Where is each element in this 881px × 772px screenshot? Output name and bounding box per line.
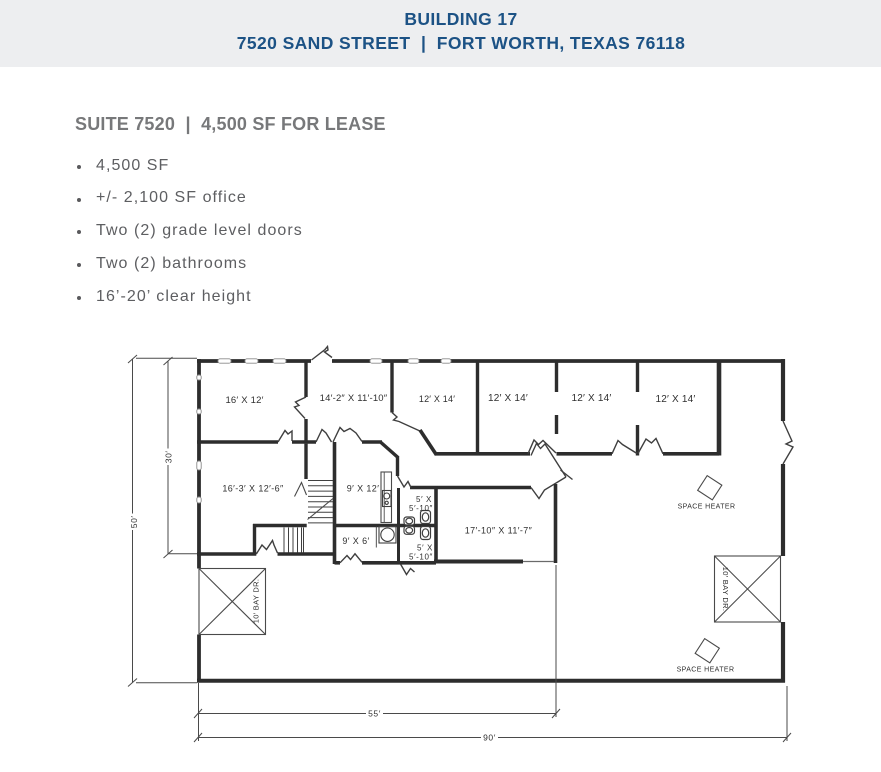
svg-text:12′ X 14′: 12′ X 14′ xyxy=(488,393,528,404)
svg-text:SPACE HEATER: SPACE HEATER xyxy=(677,667,735,674)
svg-text:17′-10″ X 11′-7″: 17′-10″ X 11′-7″ xyxy=(465,526,533,536)
svg-text:5′-10″: 5′-10″ xyxy=(409,504,433,513)
svg-text:16′ X 12′: 16′ X 12′ xyxy=(225,395,263,406)
svg-text:12′ X 14′: 12′ X 14′ xyxy=(419,394,455,404)
svg-text:10′ BAY DR.: 10′ BAY DR. xyxy=(721,567,730,611)
svg-text:50′: 50′ xyxy=(129,515,139,528)
svg-text:SPACE HEATER: SPACE HEATER xyxy=(678,504,736,511)
svg-text:5′ X: 5′ X xyxy=(417,544,433,553)
svg-text:12′ X 14′: 12′ X 14′ xyxy=(571,393,611,404)
svg-text:12′ X 14′: 12′ X 14′ xyxy=(655,394,695,405)
svg-text:5′ X: 5′ X xyxy=(416,495,432,504)
svg-text:10′ BAY DR.: 10′ BAY DR. xyxy=(252,579,261,623)
svg-text:90′: 90′ xyxy=(483,733,496,743)
svg-text:55′: 55′ xyxy=(368,709,381,719)
svg-text:9′ X 6′: 9′ X 6′ xyxy=(342,536,369,546)
svg-text:16′-3′ X 12′-6″: 16′-3′ X 12′-6″ xyxy=(222,484,284,494)
svg-text:14′-2″ X 11′-10″: 14′-2″ X 11′-10″ xyxy=(320,393,388,404)
svg-text:30′: 30′ xyxy=(163,450,173,463)
svg-text:9′ X 12′: 9′ X 12′ xyxy=(347,484,380,494)
svg-text:5′-10″: 5′-10″ xyxy=(409,553,433,562)
